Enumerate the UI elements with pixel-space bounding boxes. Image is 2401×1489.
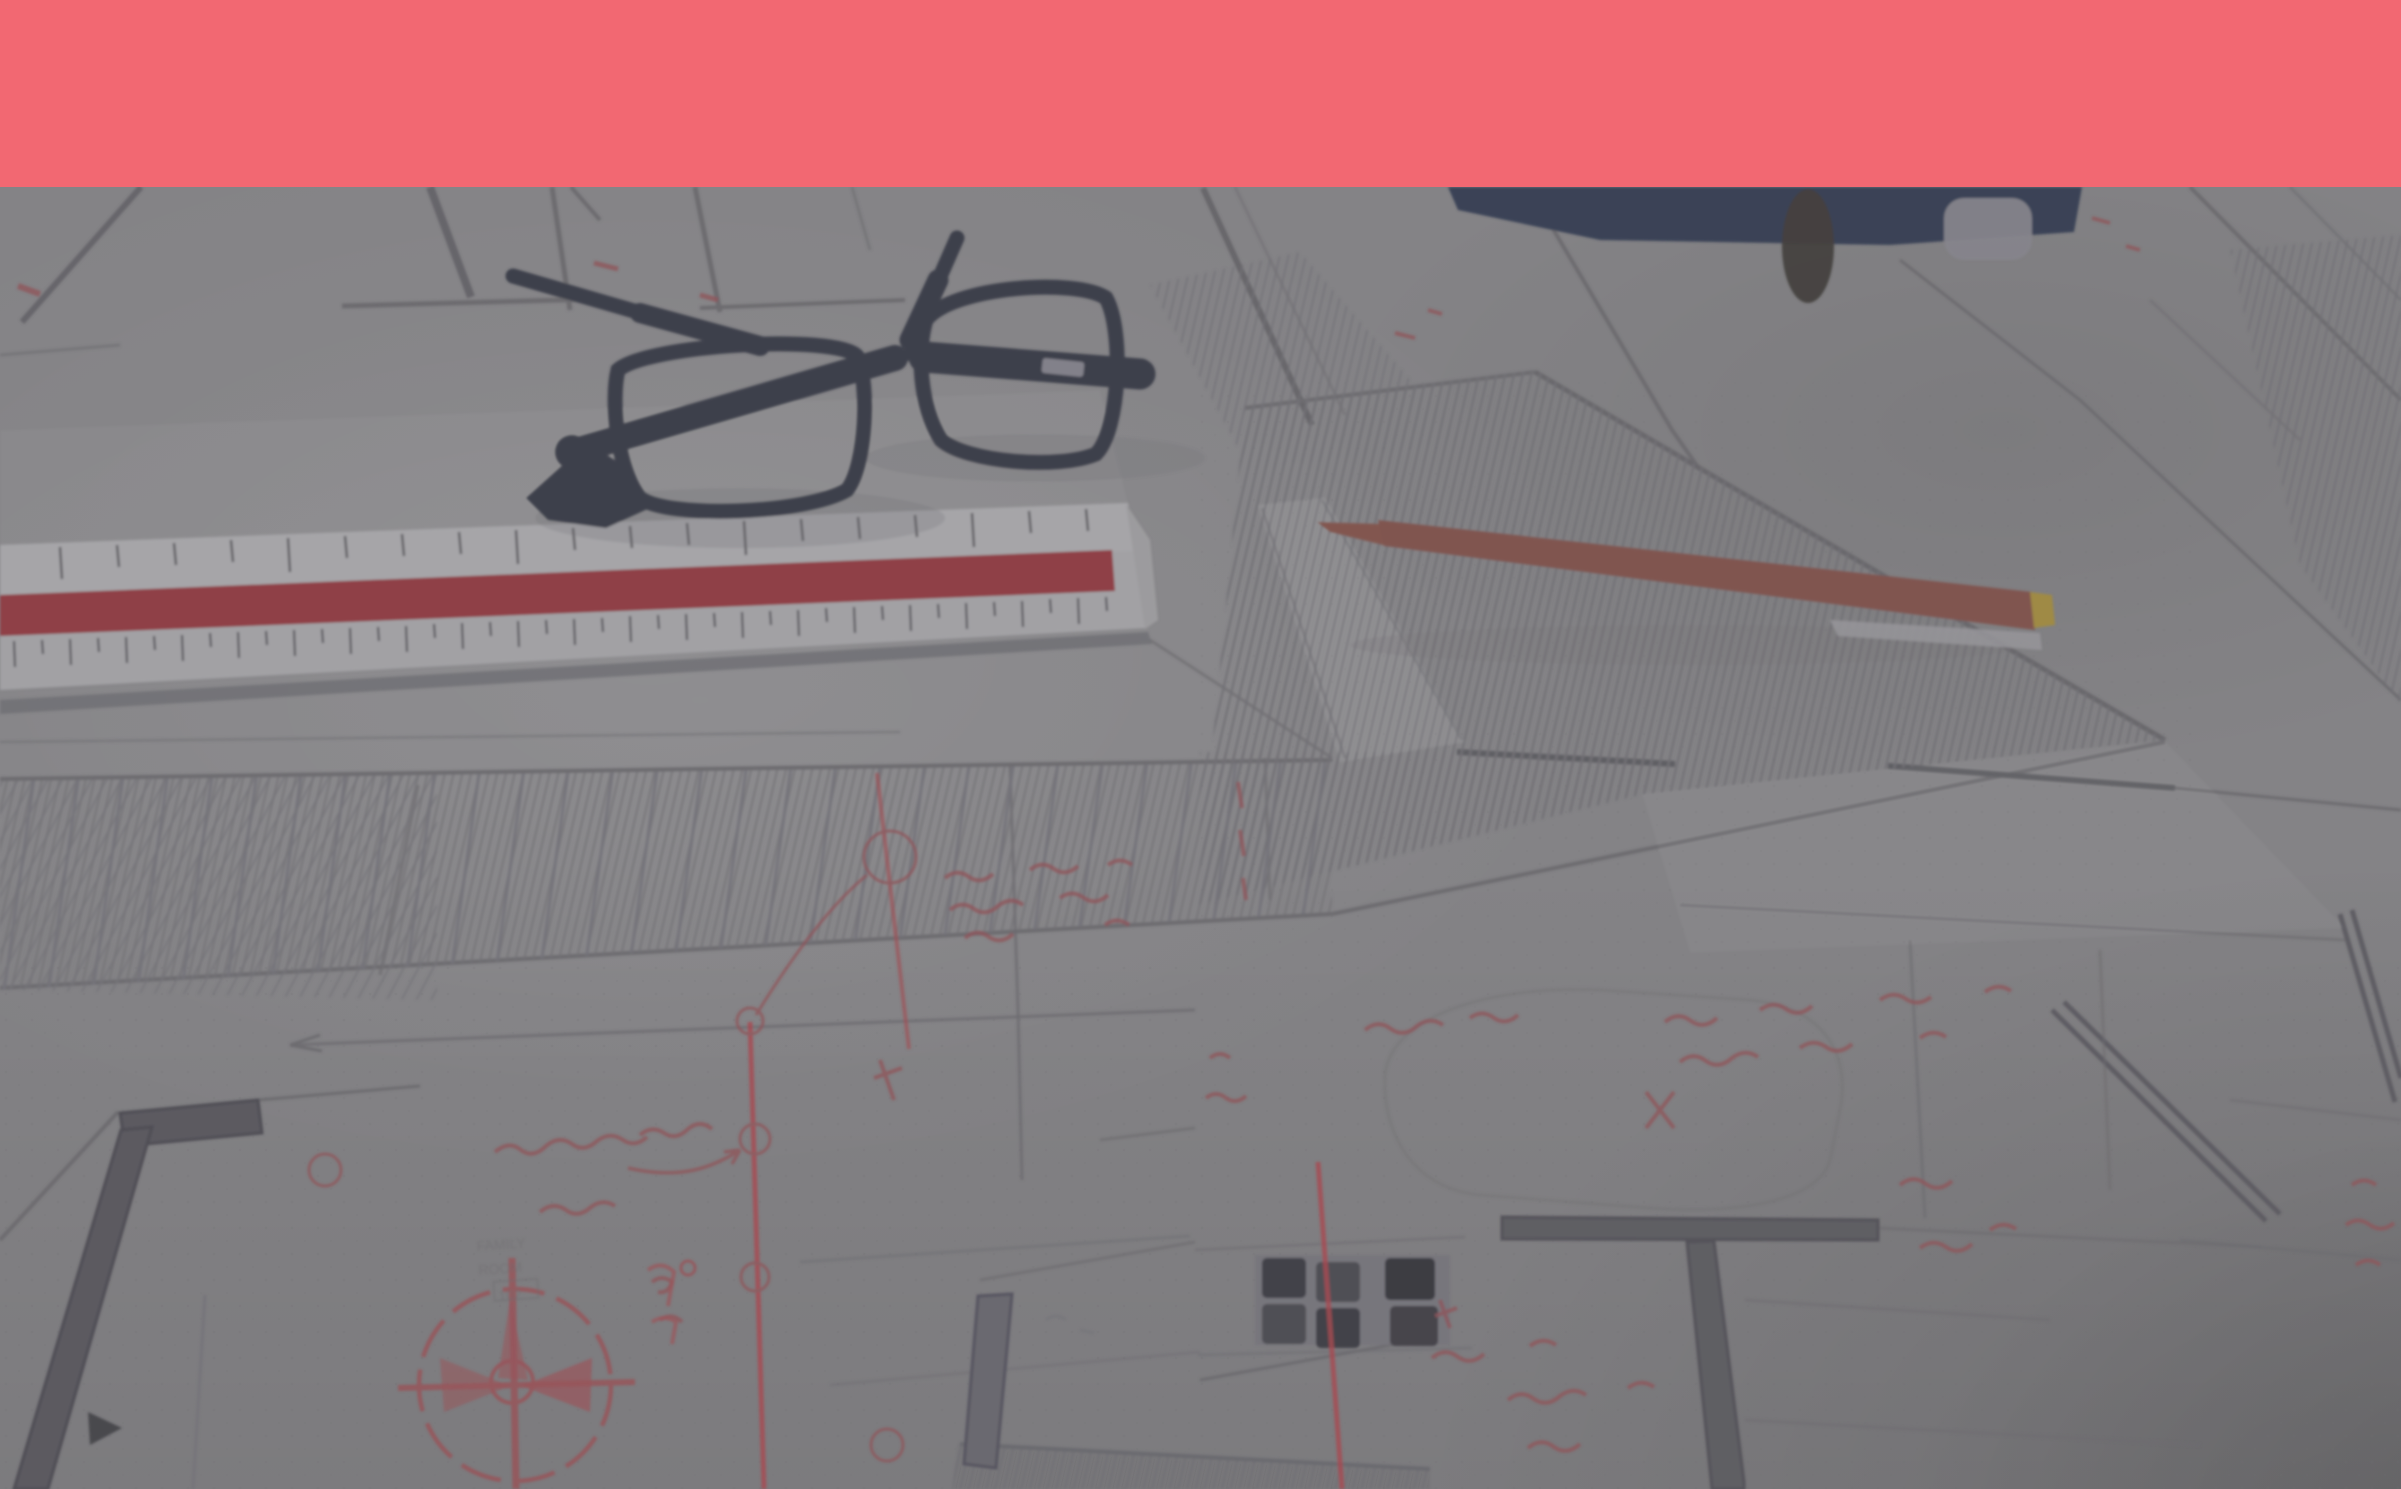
- svg-text:102: 102: [498, 1286, 523, 1304]
- svg-text:ROOM: ROOM: [478, 1259, 523, 1278]
